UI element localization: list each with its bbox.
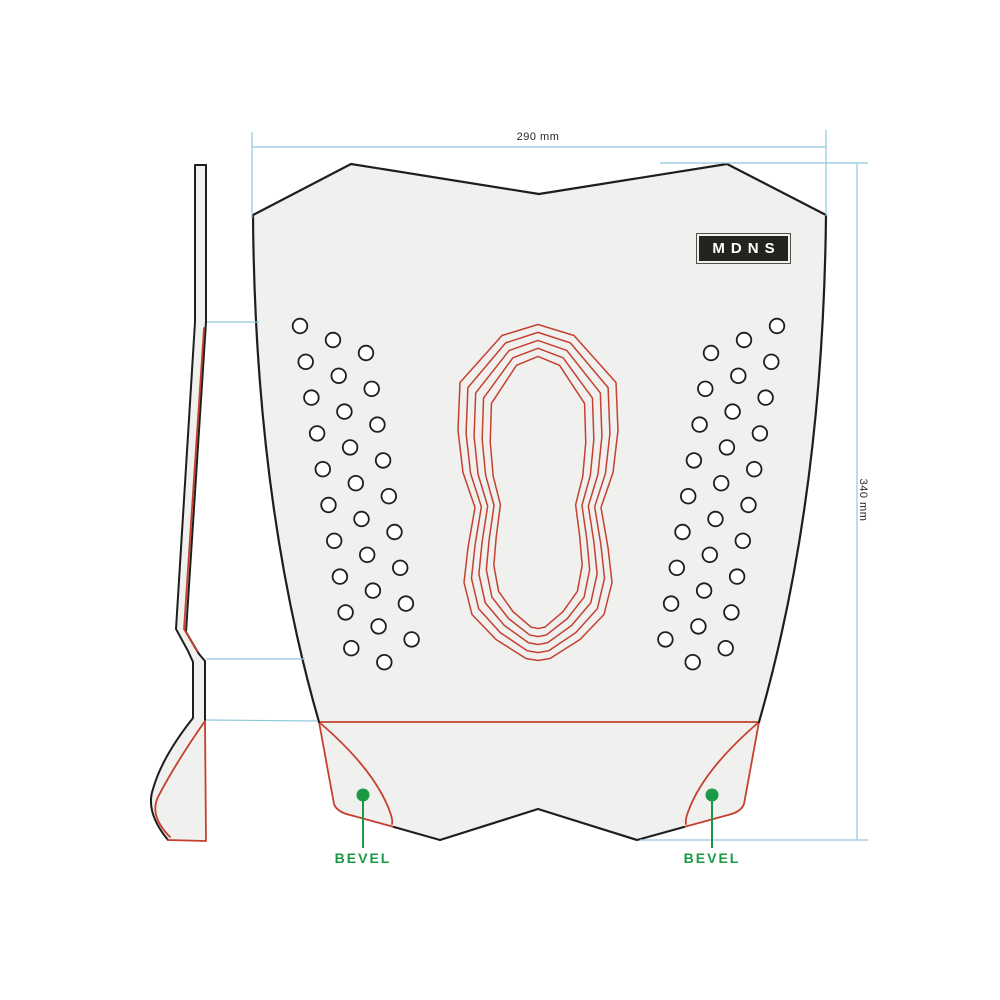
traction-dot [725, 404, 740, 419]
bevel-right-dot [706, 789, 719, 802]
traction-dot [764, 355, 779, 370]
bevel-left-label: BEVEL [308, 850, 418, 866]
top-view-pad [253, 164, 826, 840]
traction-dot [370, 417, 385, 432]
traction-dot [360, 548, 375, 563]
traction-dot [343, 440, 358, 455]
traction-dot [681, 489, 696, 504]
traction-dot [753, 426, 768, 441]
traction-dot [404, 632, 419, 647]
traction-dot [304, 390, 319, 405]
traction-dot [730, 569, 745, 584]
traction-dot [377, 655, 392, 670]
traction-dot [382, 489, 397, 504]
traction-dot [670, 561, 685, 576]
traction-dot [333, 569, 348, 584]
traction-dot [736, 534, 751, 549]
height-dimension-label: 340 mm [857, 470, 869, 530]
traction-dot [747, 462, 762, 477]
traction-dot [658, 632, 673, 647]
traction-dot [724, 605, 739, 620]
traction-dot [316, 462, 331, 477]
mdns-logo-badge: MDNS [696, 233, 791, 264]
traction-dot [337, 404, 352, 419]
profile-fill [151, 165, 206, 841]
traction-dot [331, 369, 346, 384]
traction-dot [327, 534, 342, 549]
side-profile-view [151, 165, 206, 841]
traction-pad-diagram: 290 mm 340 mm BEVEL BEVEL MDNS [0, 0, 1000, 1000]
traction-dot [704, 346, 719, 361]
diagram-linework [0, 0, 1000, 1000]
traction-dot [359, 346, 374, 361]
tie-line-kick [206, 720, 317, 721]
bevel-right-label: BEVEL [657, 850, 767, 866]
traction-dot [737, 333, 752, 348]
traction-dot [664, 596, 679, 611]
traction-dot [698, 382, 713, 397]
traction-dot [731, 369, 746, 384]
traction-dot [718, 641, 733, 656]
traction-dot [376, 453, 391, 468]
traction-dot [293, 319, 308, 334]
traction-dot [770, 319, 785, 334]
traction-dot [708, 512, 723, 527]
traction-dot [310, 426, 325, 441]
traction-dot [321, 498, 336, 513]
traction-dot [326, 333, 341, 348]
traction-dot [720, 440, 735, 455]
traction-dot [697, 583, 712, 598]
traction-dot [675, 525, 690, 540]
traction-dot [387, 525, 402, 540]
traction-dot [758, 390, 773, 405]
traction-dot [338, 605, 353, 620]
traction-dot [687, 453, 702, 468]
traction-dot [692, 417, 707, 432]
traction-dot [685, 655, 700, 670]
traction-dot [371, 619, 386, 634]
bevel-left-dot [357, 789, 370, 802]
width-dimension-label: 290 mm [488, 131, 588, 143]
traction-dot [703, 548, 718, 563]
traction-dot [354, 512, 369, 527]
traction-dot [366, 583, 381, 598]
traction-dot [399, 596, 414, 611]
traction-dot [714, 476, 729, 491]
traction-dot [349, 476, 364, 491]
traction-dot [344, 641, 359, 656]
traction-dot [298, 355, 313, 370]
mdns-logo-text: MDNS [699, 236, 788, 261]
traction-dot [741, 498, 756, 513]
traction-dot [364, 382, 379, 397]
traction-dot [691, 619, 706, 634]
traction-dot [393, 561, 408, 576]
